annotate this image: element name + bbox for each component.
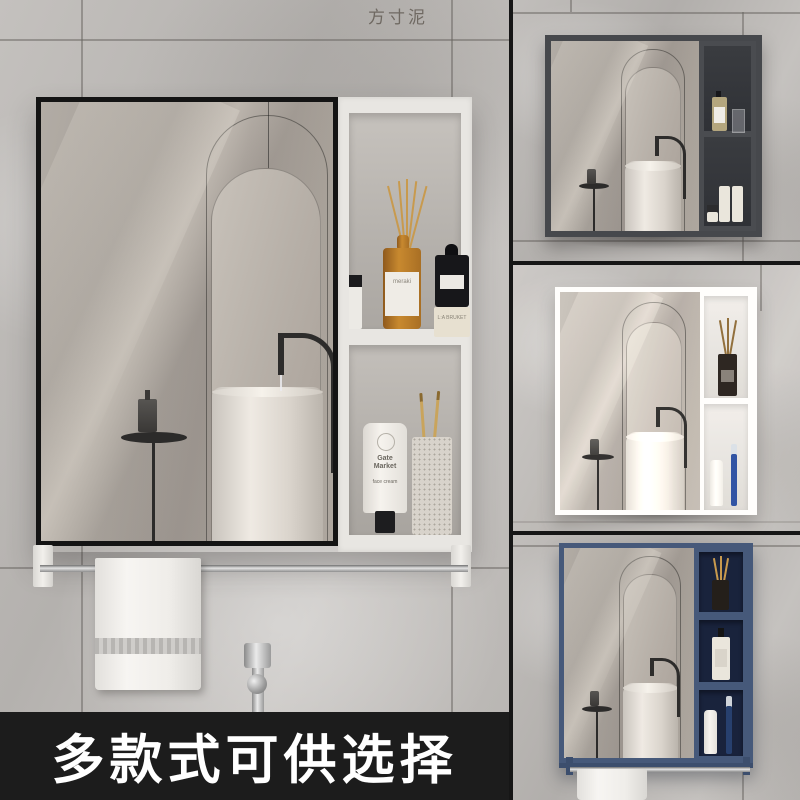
shelf-compartment	[704, 404, 748, 510]
electric-toothbrush	[731, 454, 737, 506]
tube-product: face cream	[365, 479, 405, 485]
cabinet-shadow	[563, 515, 749, 525]
side-shelf-column	[694, 548, 748, 758]
mirror-reflection	[41, 102, 333, 541]
side-shelf-column	[699, 41, 756, 231]
variant-card-dark-gray	[513, 0, 800, 261]
speckled-cup	[412, 437, 452, 535]
diffuser-bottle-dark	[718, 354, 737, 396]
reflected-side-table-stem	[152, 438, 155, 541]
wall-grout-line	[0, 39, 509, 41]
towel-bar-post-right	[743, 757, 750, 775]
mirror-reflection	[560, 292, 700, 510]
reflected-soap-dispenser	[590, 691, 599, 706]
reflected-soap-dispenser	[587, 169, 596, 184]
tube-cap	[375, 511, 395, 533]
electric-toothbrush	[726, 706, 732, 754]
white-cabinet	[555, 287, 757, 515]
variant-card-navy-blue	[513, 535, 800, 800]
water-stream	[280, 375, 282, 391]
diffuser-stick	[723, 558, 729, 582]
jar-lid	[349, 275, 362, 287]
wall-grout-line	[570, 0, 572, 12]
faucet-spout	[650, 658, 654, 676]
glass-cup	[732, 109, 745, 133]
partial-jar	[349, 275, 362, 329]
white-bottle	[732, 186, 743, 222]
toothpaste-tube	[704, 710, 717, 754]
towel-bar-post-left	[566, 757, 573, 775]
reflected-side-table-stem	[597, 457, 599, 510]
faucet-spout	[656, 407, 660, 427]
diffuser-stick	[729, 320, 737, 356]
reflected-side-table-stem	[596, 709, 598, 758]
soap-pump	[145, 390, 150, 400]
diffuser-bottle-dark	[712, 580, 729, 610]
navy-blue-cabinet	[559, 543, 753, 768]
diffuser-bottle: meraki	[383, 248, 421, 329]
divider-horizontal-2	[513, 531, 800, 535]
toothpaste-tube	[710, 460, 723, 506]
perfume-label	[440, 275, 464, 289]
dark-gray-cabinet	[545, 35, 762, 237]
variant-card-white	[513, 265, 800, 531]
side-shelf-column	[700, 292, 752, 510]
reflected-soap-dispenser	[138, 399, 157, 432]
faucet-dial	[247, 674, 267, 694]
cabinet-shadow	[553, 237, 753, 249]
watermark-text: 方寸泥	[368, 3, 428, 28]
shelf-compartment	[704, 137, 751, 226]
cream-jar: L:A BRUKET	[434, 307, 470, 337]
reflected-gooseneck-faucet	[281, 333, 333, 473]
bottle-label	[714, 107, 725, 123]
shelf-compartment	[699, 552, 743, 612]
hanging-towel	[577, 769, 647, 800]
jar-lid	[707, 205, 718, 212]
pump-bottle-white	[712, 637, 730, 680]
shelf-compartment	[699, 690, 743, 756]
main-mirror-cabinet: meraki L:A BRUKET Gate Market face cream	[36, 97, 472, 552]
shelf-compartment	[704, 296, 748, 398]
wall-grout-line	[513, 12, 800, 14]
toothbrush-wooden	[419, 393, 425, 441]
promo-banner-text: 多款式可供选择	[52, 718, 458, 794]
small-jar	[707, 212, 718, 222]
shelf-compartment	[704, 46, 751, 131]
pump-bottle	[712, 97, 727, 131]
faucet-spout	[655, 136, 659, 156]
side-shelf-unit: meraki L:A BRUKET Gate Market face cream	[338, 97, 472, 552]
bottle-label	[715, 649, 727, 667]
tube-brand: Gate Market	[365, 455, 405, 471]
mirror-reflection	[564, 548, 694, 758]
faucet-spout	[278, 333, 284, 375]
divider-horizontal-1	[513, 261, 800, 265]
face-cream-tube: Gate Market face cream	[363, 423, 407, 513]
mirror-reflection	[551, 41, 699, 231]
shelf-compartment-bottom: Gate Market face cream	[349, 345, 461, 535]
hanging-towel	[95, 558, 201, 690]
reflected-gooseneck-faucet	[652, 658, 680, 717]
diffuser-stick	[719, 320, 727, 356]
tube-logo	[377, 433, 395, 451]
reflected-side-table-stem	[593, 186, 595, 231]
reflected-soap-dispenser	[590, 439, 599, 455]
toothbrush-wooden	[433, 391, 440, 441]
shelf-compartment-top: meraki L:A BRUKET	[349, 113, 461, 329]
divider-vertical	[509, 0, 513, 800]
wall-grout-line	[760, 265, 762, 311]
mirror-door-black-frame	[36, 97, 338, 546]
diffuser-stick	[713, 558, 719, 582]
reflected-gooseneck-faucet	[657, 136, 686, 199]
product-image: 方寸泥	[0, 0, 800, 800]
towel-stripe	[95, 638, 201, 654]
white-bottle	[719, 186, 730, 222]
diffuser-label: meraki	[385, 272, 419, 316]
shelf-compartment	[699, 620, 743, 682]
diffuser-label	[721, 370, 734, 382]
faucet-body	[244, 643, 271, 668]
diffuser-stick	[720, 556, 722, 582]
reflected-gooseneck-faucet	[658, 407, 687, 468]
promo-banner: 多款式可供选择	[0, 712, 509, 800]
perfume-bottle	[435, 255, 469, 307]
